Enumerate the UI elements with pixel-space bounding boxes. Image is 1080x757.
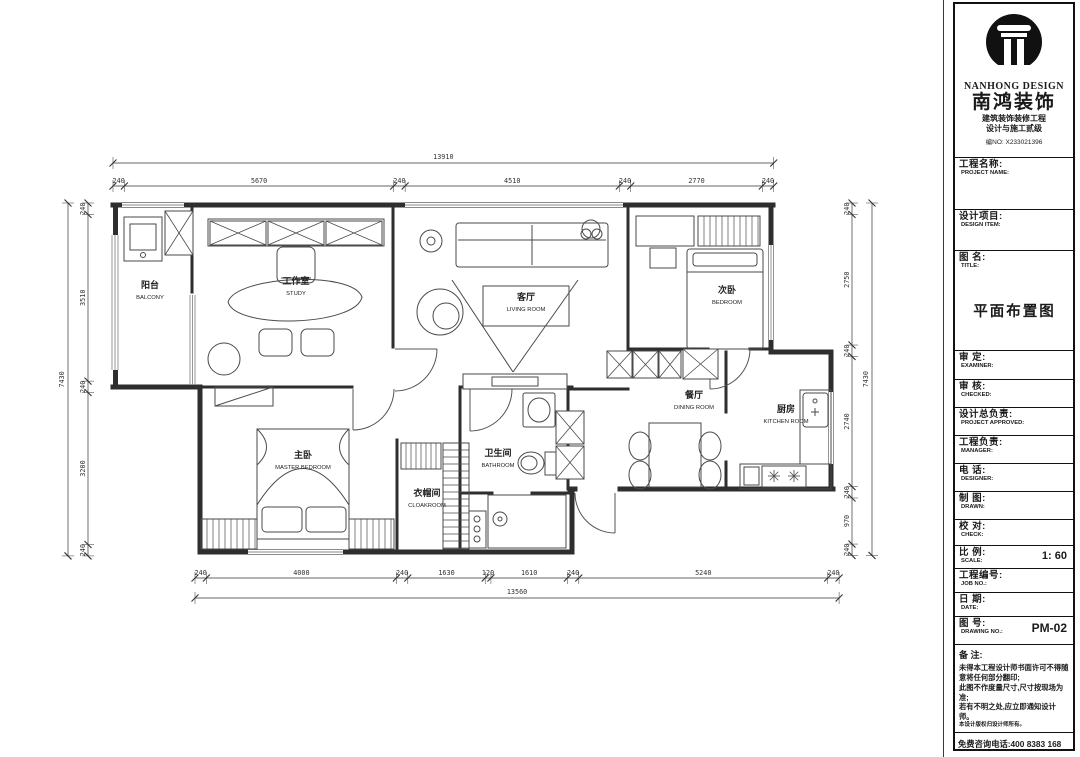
field-label-zh: 设计项目: bbox=[959, 212, 1070, 222]
field-scale: 比 例:SCALE:1: 60 bbox=[955, 545, 1073, 568]
nanhong-logo bbox=[984, 12, 1044, 74]
room-label-zh-dining: 餐厅 bbox=[684, 389, 703, 400]
dim-value: 240 bbox=[195, 569, 207, 577]
field-title: 图 名:TITLE:平面布置图 bbox=[955, 250, 1073, 350]
field-value-scale: 1: 60 bbox=[1042, 550, 1067, 562]
room-label-en-kitchen: KITCHEN ROOM bbox=[763, 419, 808, 425]
dim-value: 7430 bbox=[58, 371, 66, 387]
field-approved: 设计总负责:PROJECT APPROVED: bbox=[955, 407, 1073, 435]
dim-value: 240 bbox=[79, 203, 87, 215]
field-label-en: CHECK: bbox=[959, 532, 1070, 539]
dim-value: 5670 bbox=[251, 177, 267, 185]
notes-title: 备 注: bbox=[959, 648, 1069, 661]
dim-value: 240 bbox=[843, 486, 851, 498]
dim-value: 240 bbox=[843, 345, 851, 357]
nightstand bbox=[650, 248, 676, 268]
field-value-title: 平面布置图 bbox=[959, 300, 1070, 321]
dim-value: 2750 bbox=[843, 272, 851, 288]
field-label-zh: 电 话: bbox=[959, 466, 1070, 476]
dim-value: 4510 bbox=[504, 177, 520, 185]
brand-cert-2: 设计与施工贰级 bbox=[955, 124, 1073, 134]
dim-value: 240 bbox=[79, 381, 87, 393]
stove bbox=[762, 466, 806, 487]
dim-value: 240 bbox=[762, 177, 774, 185]
tv-cabinet bbox=[463, 374, 567, 389]
field-label-en: DESIGN ITEM: bbox=[959, 222, 1070, 229]
bed bbox=[687, 249, 763, 349]
dim-value: 240 bbox=[79, 544, 87, 556]
room-label-en-dining: DINING ROOM bbox=[674, 405, 714, 411]
room-label-zh-bedroom2: 次卧 bbox=[718, 284, 736, 295]
dim-value: 2770 bbox=[688, 177, 704, 185]
field-design-item: 设计项目:DESIGN ITEM: bbox=[955, 209, 1073, 250]
dim-value: 240 bbox=[567, 569, 579, 577]
field-examiner: 审 定:EXAMINER: bbox=[955, 350, 1073, 379]
dim-value: 3510 bbox=[79, 290, 87, 306]
dim-value: 120 bbox=[482, 569, 494, 577]
hotline: 免费咨询电话:400 8383 168 bbox=[955, 732, 1073, 756]
field-label-en: PROJECT APPROVED: bbox=[959, 420, 1070, 427]
title-block-fields: 工程名称:PROJECT NAME:设计项目:DESIGN ITEM:图 名:T… bbox=[955, 157, 1073, 644]
field-project-name: 工程名称:PROJECT NAME: bbox=[955, 157, 1073, 209]
shower-room bbox=[488, 495, 566, 548]
dim-value: 13560 bbox=[507, 588, 527, 596]
note-line: 若有不明之处,应立即通知设计师。 bbox=[959, 702, 1069, 722]
field-manager: 工程负责:MANAGER: bbox=[955, 435, 1073, 463]
field-value-drawing-no: PM-02 bbox=[1032, 621, 1067, 635]
field-phone: 电 话:DESIGNER: bbox=[955, 463, 1073, 491]
dim-value: 13910 bbox=[433, 153, 453, 161]
dim-value: 240 bbox=[827, 569, 839, 577]
field-label-zh: 审 定: bbox=[959, 353, 1070, 363]
note-line: 未得本工程设计师书面许可不得随意将任何部分翻印; bbox=[959, 663, 1069, 683]
field-drawing-no: 图 号:DRAWING NO.:PM-02 bbox=[955, 616, 1073, 644]
room-label-zh-kitchen: 厨房 bbox=[777, 403, 795, 414]
master-bed bbox=[257, 429, 349, 539]
field-label-en: DESIGNER: bbox=[959, 476, 1070, 483]
field-label-en: DRAWN: bbox=[959, 504, 1070, 511]
room-label-zh-study: 工作室 bbox=[282, 275, 309, 286]
room-label-en-master: MASTER BEDROOM bbox=[275, 465, 331, 471]
field-label-en: EXAMINER: bbox=[959, 363, 1070, 370]
field-drawn: 制 图:DRAWN: bbox=[955, 491, 1073, 519]
dim-value: 240 bbox=[843, 203, 851, 215]
field-label-en: DATE: bbox=[959, 605, 1070, 612]
room-label-en-study: STUDY bbox=[286, 291, 306, 297]
dim-value: 1610 bbox=[521, 569, 537, 577]
field-label-zh: 日 期: bbox=[959, 595, 1070, 605]
room-label-zh-balcony: 阳台 bbox=[141, 279, 159, 290]
dim-value: 4000 bbox=[293, 569, 309, 577]
note-line: 本设计版权归设计师所有。 bbox=[959, 722, 1069, 729]
brand-name-zh: 南鸿装饰 bbox=[955, 92, 1073, 114]
field-label-zh: 校 对: bbox=[959, 522, 1070, 532]
drawing-sheet: 阳台BALCONY工作室STUDY客厅LIVING ROOM次卧BEDROOM餐… bbox=[0, 0, 1080, 757]
brand-name-en: NANHONG DESIGN bbox=[955, 81, 1073, 92]
toilet bbox=[518, 452, 544, 474]
room-label-en-bedroom2: BEDROOM bbox=[712, 300, 742, 306]
floor-plan: 阳台BALCONY工作室STUDY客厅LIVING ROOM次卧BEDROOM餐… bbox=[0, 0, 950, 757]
notes-lines: 未得本工程设计师书面许可不得随意将任何部分翻印;此图不作度量尺寸,尺寸按现场为准… bbox=[959, 663, 1069, 729]
dim-value: 240 bbox=[393, 177, 405, 185]
dim-value: 240 bbox=[396, 569, 408, 577]
field-label-zh: 工程名称: bbox=[959, 160, 1070, 170]
dim-value: 240 bbox=[113, 177, 125, 185]
field-label-zh: 制 图: bbox=[959, 494, 1070, 504]
dim-value: 240 bbox=[619, 177, 631, 185]
brand-cert-1: 建筑装饰装修工程 bbox=[955, 114, 1073, 124]
room-label-zh-cloakroom: 衣帽间 bbox=[413, 487, 440, 498]
field-label-en: JOB NO.: bbox=[959, 581, 1070, 588]
brand-cert-no: 编NO: X233021396 bbox=[955, 136, 1073, 146]
dim-value: 7430 bbox=[862, 371, 870, 387]
field-label-zh: 审 核: bbox=[959, 382, 1070, 392]
dim-value: 240 bbox=[843, 544, 851, 556]
field-label-zh: 图 名: bbox=[959, 253, 1070, 263]
dim-value: 3200 bbox=[79, 460, 87, 476]
field-job-no: 工程编号:JOB NO.: bbox=[955, 568, 1073, 592]
dim-value: 2740 bbox=[843, 413, 851, 429]
room-label-en-living: LIVING ROOM bbox=[507, 307, 546, 313]
dim-value: 1630 bbox=[438, 569, 454, 577]
dim-value: 970 bbox=[843, 515, 851, 527]
room-label-zh-living: 客厅 bbox=[516, 291, 535, 302]
field-label-en: TITLE: bbox=[959, 263, 1070, 270]
field-date: 日 期:DATE: bbox=[955, 592, 1073, 616]
armchair bbox=[417, 289, 463, 335]
field-label-en: CHECKED: bbox=[959, 392, 1070, 399]
ceiling-fan bbox=[420, 230, 442, 252]
field-label-zh: 工程编号: bbox=[959, 571, 1070, 581]
note-line: 此图不作度量尺寸,尺寸按现场为准; bbox=[959, 683, 1069, 703]
room-label-en-cloakroom: CLOAKROOM bbox=[408, 503, 446, 509]
sheet-divider bbox=[943, 0, 944, 757]
notes-section: 备 注: 未得本工程设计师书面许可不得随意将任何部分翻印;此图不作度量尺寸,尺寸… bbox=[955, 644, 1073, 732]
room-label-en-bathroom: BATHROOM bbox=[481, 463, 514, 469]
field-label-en: PROJECT NAME: bbox=[959, 170, 1070, 177]
field-label-zh: 设计总负责: bbox=[959, 410, 1070, 420]
room-label-en-balcony: BALCONY bbox=[136, 295, 164, 301]
field-label-zh: 工程负责: bbox=[959, 438, 1070, 448]
dim-value: 5240 bbox=[695, 569, 711, 577]
brand-block: NANHONG DESIGN 南鸿装饰 建筑装饰装修工程 设计与施工贰级 编NO… bbox=[955, 4, 1073, 157]
field-checked: 审 核:CHECKED: bbox=[955, 379, 1073, 407]
field-check: 校 对:CHECK: bbox=[955, 519, 1073, 545]
room-label-zh-master: 主卧 bbox=[294, 449, 312, 460]
dining-table bbox=[649, 423, 701, 487]
field-label-en: MANAGER: bbox=[959, 448, 1070, 455]
room-label-zh-bathroom: 卫生间 bbox=[484, 447, 511, 458]
title-block: NANHONG DESIGN 南鸿装饰 建筑装饰装修工程 设计与施工贰级 编NO… bbox=[953, 2, 1075, 751]
